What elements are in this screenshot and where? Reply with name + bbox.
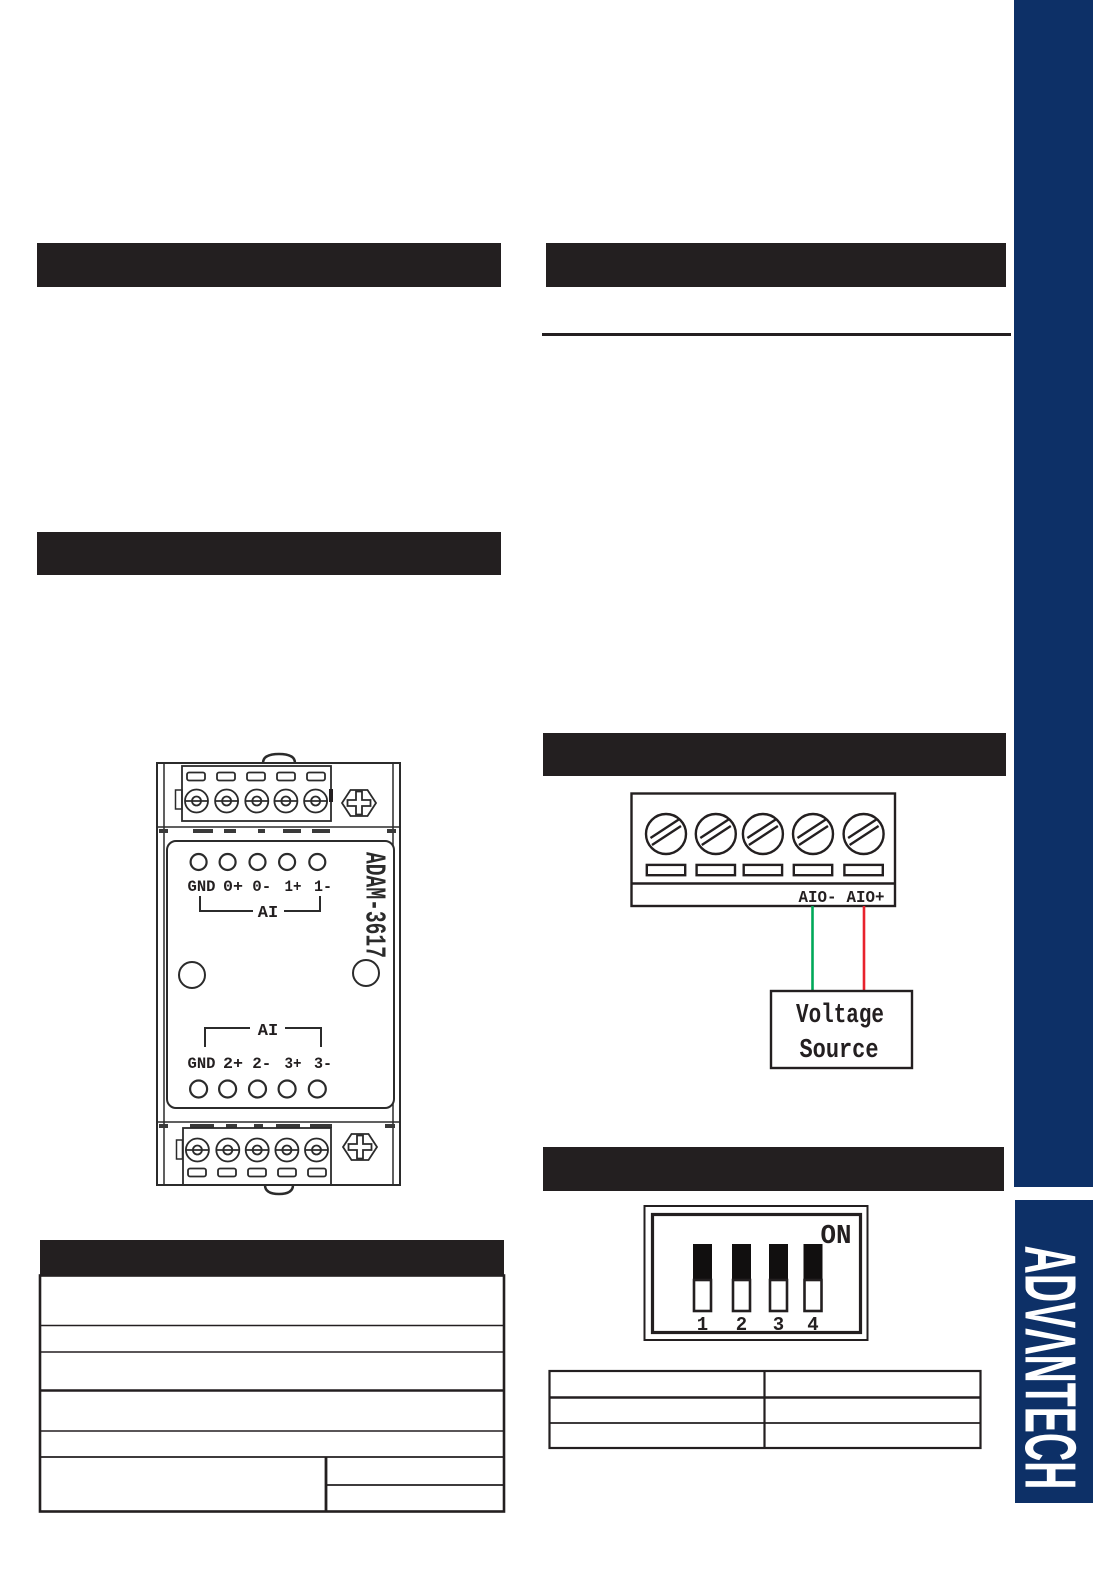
svg-text:GND: GND xyxy=(188,1055,216,1073)
svg-text:1+: 1+ xyxy=(285,878,302,896)
svg-text:3+: 3+ xyxy=(285,1055,302,1073)
svg-text:AI: AI xyxy=(258,1022,278,1041)
svg-text:Voltage: Voltage xyxy=(796,1001,884,1031)
svg-text:0+: 0+ xyxy=(223,878,243,896)
svg-text:1: 1 xyxy=(697,1314,708,1336)
svg-text:3-: 3- xyxy=(314,1055,332,1073)
svg-text:ADVΛNTECH: ADVΛNTECH xyxy=(1010,1246,1090,1490)
svg-text:2+: 2+ xyxy=(223,1055,243,1073)
svg-text:4: 4 xyxy=(807,1314,818,1336)
svg-text:2-: 2- xyxy=(252,1055,271,1073)
svg-text:0-: 0- xyxy=(252,878,271,896)
svg-text:1-: 1- xyxy=(314,878,332,896)
svg-text:ADAM-3617: ADAM-3617 xyxy=(358,852,391,958)
svg-text:AIO+: AIO+ xyxy=(847,889,885,908)
svg-text:Source: Source xyxy=(800,1036,879,1066)
svg-text:AI: AI xyxy=(258,904,278,923)
svg-text:GND: GND xyxy=(188,878,216,896)
svg-text:AIO-: AIO- xyxy=(799,889,837,908)
svg-text:3: 3 xyxy=(773,1314,784,1336)
svg-text:2: 2 xyxy=(736,1314,747,1336)
svg-text:ON: ON xyxy=(821,1222,852,1252)
